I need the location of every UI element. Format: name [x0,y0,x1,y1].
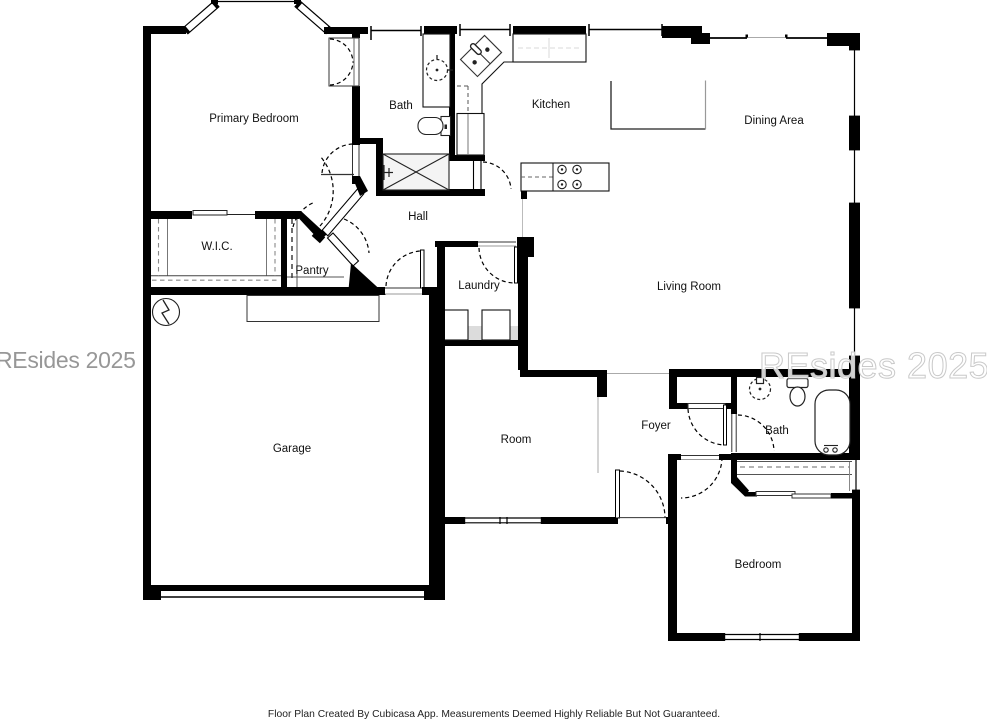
svg-text:REsides 2025: REsides 2025 [0,347,136,373]
svg-text:Dining Area: Dining Area [744,115,804,127]
svg-text:Laundry: Laundry [458,280,500,292]
svg-text:Garage: Garage [273,443,311,455]
svg-text:Bath: Bath [765,425,789,437]
svg-text:REsides 2025: REsides 2025 [759,345,987,386]
svg-text:Bath: Bath [389,100,413,112]
svg-text:Bedroom: Bedroom [735,559,782,571]
svg-text:Living Room: Living Room [657,281,721,293]
svg-text:W.I.C.: W.I.C. [201,241,232,253]
svg-text:Kitchen: Kitchen [532,99,570,111]
svg-text:Primary Bedroom: Primary Bedroom [209,113,298,125]
svg-text:Hall: Hall [408,211,428,223]
svg-text:Foyer: Foyer [641,420,671,432]
svg-text:Pantry: Pantry [295,265,328,277]
svg-text:Room: Room [501,434,532,446]
svg-text:Floor Plan Created By Cubicasa: Floor Plan Created By Cubicasa App. Meas… [268,709,720,720]
